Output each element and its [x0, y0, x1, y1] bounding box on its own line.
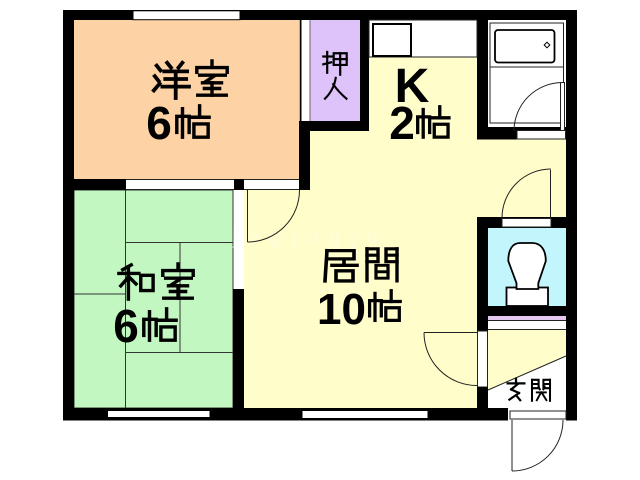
svg-text:jogjogjo: jogjogjo	[231, 227, 389, 249]
svg-text:6: 6	[146, 97, 172, 149]
svg-text:10: 10	[317, 285, 366, 334]
svg-text:6: 6	[113, 300, 139, 352]
svg-text:2: 2	[389, 97, 415, 149]
